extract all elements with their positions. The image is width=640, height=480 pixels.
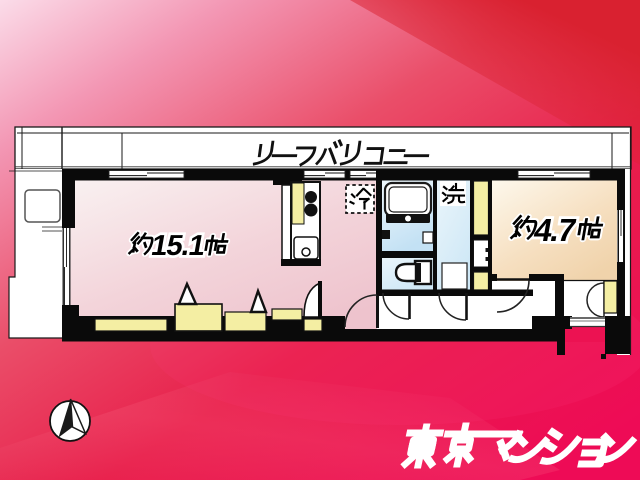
- svg-text:15.1: 15.1: [149, 230, 208, 262]
- svg-text:4.7: 4.7: [531, 212, 578, 248]
